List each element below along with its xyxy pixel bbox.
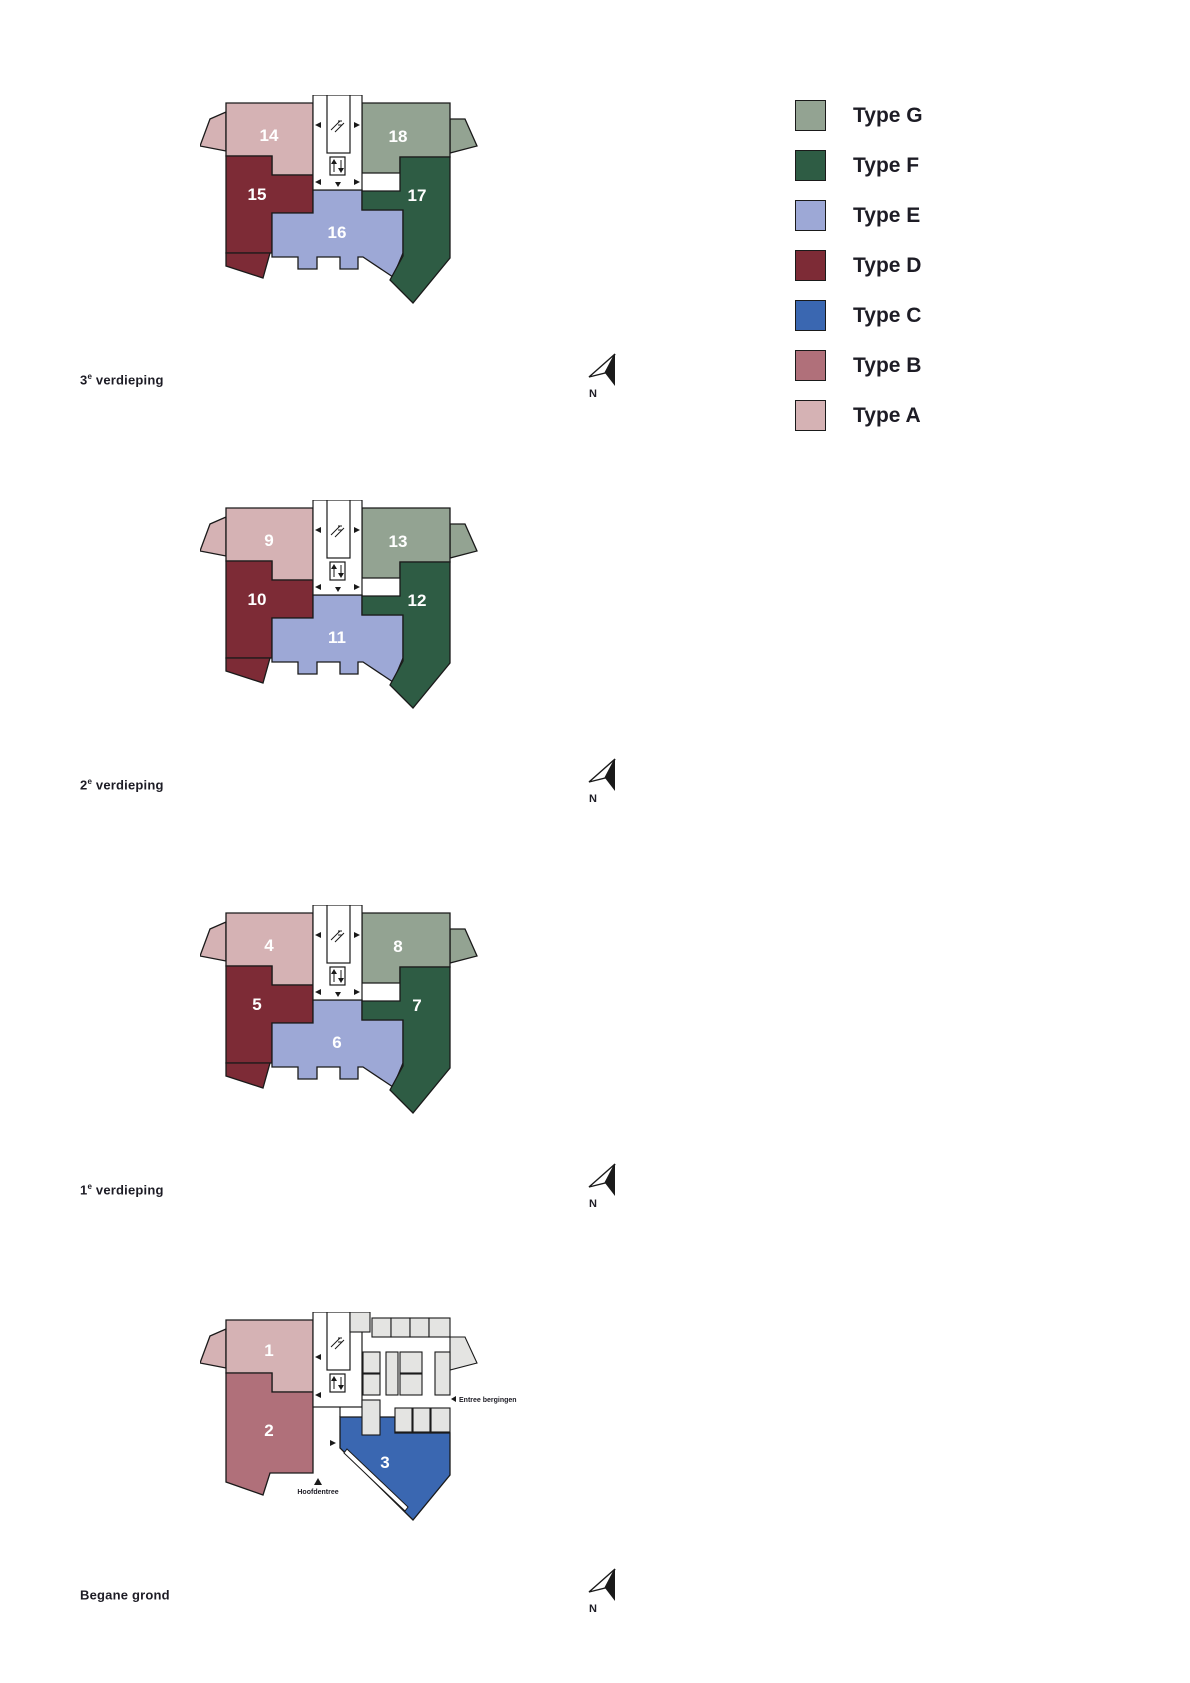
floor-label-text: Begane grond [80,1587,170,1602]
legend-label: Type F [853,154,919,178]
legend-item-type-c: Type C [795,300,923,331]
storage-unit [410,1318,429,1337]
storage-unit [363,1352,380,1373]
unit-number: 7 [412,996,421,1015]
storage-unit [391,1318,410,1337]
unit-region-a-flap [200,1329,226,1368]
storage-unit [386,1352,398,1395]
unit-number: 5 [252,995,261,1014]
unit-number: 3 [380,1453,389,1472]
unit-number: 9 [264,531,273,550]
legend-swatch-type-d [795,250,826,281]
north-arrow-icon: N [588,1162,634,1210]
storage-unit [400,1352,422,1373]
north-label: N [589,1603,597,1615]
floor-label-3e-verdieping: 3e verdieping [80,372,164,387]
storage-unit [350,1312,370,1332]
unit-number: 18 [389,127,408,146]
floor-plan-3e-verdieping: 14 15 16 17 18 [200,95,480,310]
unit-number: 12 [408,591,427,610]
legend-swatch-type-a [795,400,826,431]
north-arrow-icon: N [588,1567,634,1615]
legend-label: Type A [853,404,921,428]
floor-label-begane-grond: Begane grond [80,1587,170,1602]
north-arrow-icon: N [588,352,634,400]
legend-item-type-f: Type F [795,150,923,181]
unit-number: 8 [393,937,402,956]
north-needle [589,354,615,386]
storage-unit [431,1408,450,1432]
floor-label-1e-verdieping: 1e verdieping [80,1182,164,1197]
north-label: N [589,388,597,400]
storage-unit [413,1408,430,1432]
legend-swatch-type-g [795,100,826,131]
storage-unit [400,1374,422,1395]
floor-label-text: verdieping [92,1182,164,1197]
legend-label: Type E [853,204,920,228]
unit-number: 16 [328,223,347,242]
entree-bergingen-label: Entree bergingen [459,1397,517,1404]
storage-unit [435,1352,450,1395]
floor-shapes [200,905,477,1113]
unit-number: 6 [332,1033,341,1052]
storage-unit [362,1400,380,1435]
unit-number: 14 [260,126,279,145]
north-label: N [589,1198,597,1210]
north-label: N [589,793,597,805]
entry-arrow-icon [330,1440,336,1446]
storage-unit-flap [450,1337,477,1370]
unit-number: 15 [248,185,267,204]
legend-swatch-type-c [795,300,826,331]
legend-item-type-g: Type G [795,100,923,131]
unit-number: 2 [264,1421,273,1440]
floorplan-sheet: 14 15 16 17 18 3e verdieping N 9 10 11 1… [0,0,1190,1683]
legend-label: Type B [853,354,921,378]
floor-label-text: verdieping [92,777,164,792]
legend-item-type-b: Type B [795,350,923,381]
floor-plan-begane-grond: Entree bergingen Hoofdentree 1 2 3 [200,1312,520,1527]
legend-label: Type G [853,104,923,128]
floor-label-text: verdieping [92,372,164,387]
floor-plan-2e-verdieping: 9 10 11 12 13 [200,500,480,715]
legend-swatch-type-b [795,350,826,381]
legend-swatch-type-f [795,150,826,181]
floor-plan-1e-verdieping: 4 5 6 7 8 [200,905,480,1120]
legend-label: Type D [853,254,921,278]
type-legend: Type G Type F Type E Type D Type C Type … [795,100,923,450]
floor-shapes [200,500,477,708]
unit-number: 11 [328,628,346,647]
elevator-box [330,1374,345,1392]
legend-swatch-type-e [795,200,826,231]
legend-item-type-a: Type A [795,400,923,431]
storage-unit [395,1408,412,1432]
floor-label-2e-verdieping: 2e verdieping [80,777,164,792]
legend-item-type-e: Type E [795,200,923,231]
hoofdentree-label: Hoofdentree [297,1489,338,1496]
north-arrow-icon: N [588,757,634,805]
north-needle [589,759,615,791]
north-needle [589,1569,615,1601]
unit-number: 17 [408,186,427,205]
legend-label: Type C [853,304,921,328]
stair-shaft [327,1312,350,1370]
north-needle [589,1164,615,1196]
unit-number: 1 [264,1341,273,1360]
storage-unit [429,1318,450,1337]
unit-number: 13 [389,532,408,551]
unit-number: 4 [264,936,274,955]
legend-item-type-d: Type D [795,250,923,281]
unit-number: 10 [248,590,267,609]
hoofdentree-arrow-icon [314,1478,322,1485]
storage-unit [372,1318,391,1337]
storage-unit [363,1374,380,1395]
floor-shapes [200,95,477,303]
bergingen-entry-arrow-icon [451,1396,456,1402]
